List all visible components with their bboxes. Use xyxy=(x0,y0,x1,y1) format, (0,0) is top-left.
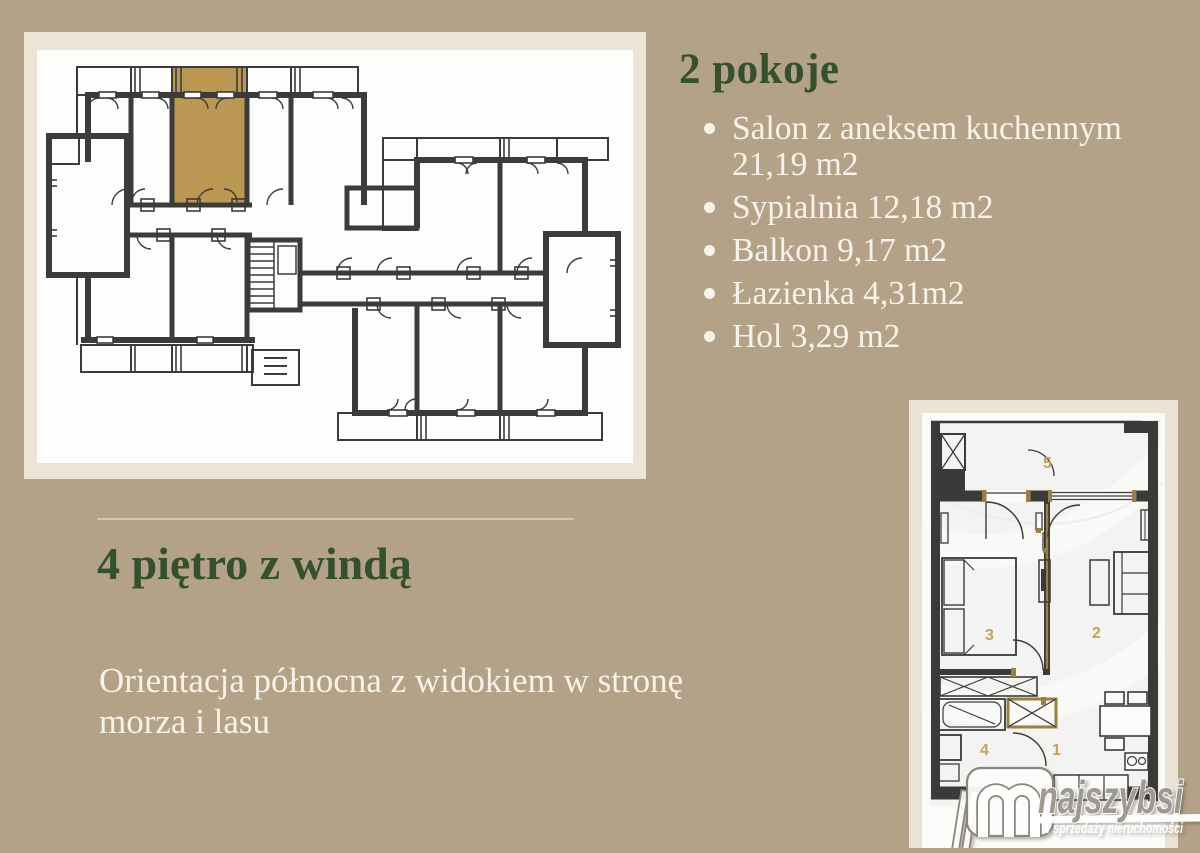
svg-text:najszybsi: najszybsi xyxy=(1038,771,1184,823)
svg-text:2: 2 xyxy=(1092,625,1101,642)
svg-text:w sprzedaży nieruchomości: w sprzedaży nieruchomości xyxy=(1042,820,1184,837)
svg-text:3: 3 xyxy=(985,627,994,644)
svg-text:5: 5 xyxy=(1043,455,1052,472)
